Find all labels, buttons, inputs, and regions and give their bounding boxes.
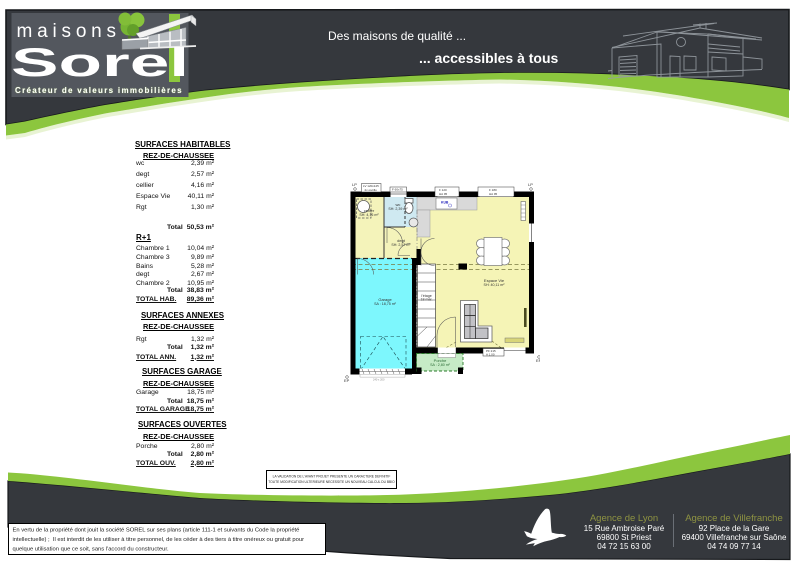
svg-text:2v oscillo: 2v oscillo [365,188,378,192]
svg-text:F 60x75: F 60x75 [392,188,403,192]
svg-text:18 mar.: 18 mar. [421,298,433,302]
svg-text:LP: LP [352,182,357,187]
svg-text:SH: 2,57 m²: SH: 2,57 m² [391,243,411,247]
svg-text:SA : 2,80 m²: SA : 2,80 m² [430,363,451,367]
svg-text:SH: 4,16 m²: SH: 4,16 m² [359,213,379,217]
svg-text:LP: LP [528,182,533,187]
svg-text:EP: EP [536,358,540,363]
svg-text:HA 95: HA 95 [489,192,498,196]
svg-text:SH: 2,39 m²: SH: 2,39 m² [388,207,408,211]
svg-text:SH: 40,11 m²: SH: 40,11 m² [484,283,506,287]
svg-text:SA : 18,75 m²: SA : 18,75 m² [374,302,397,306]
svg-text:EP: EP [344,378,350,383]
svg-text:A 1,00: A 1,00 [486,353,495,357]
svg-text:KUB: KUB [441,201,449,205]
svg-text:240 x 200: 240 x 200 [373,378,385,382]
svg-text:HA 95: HA 95 [439,192,448,196]
